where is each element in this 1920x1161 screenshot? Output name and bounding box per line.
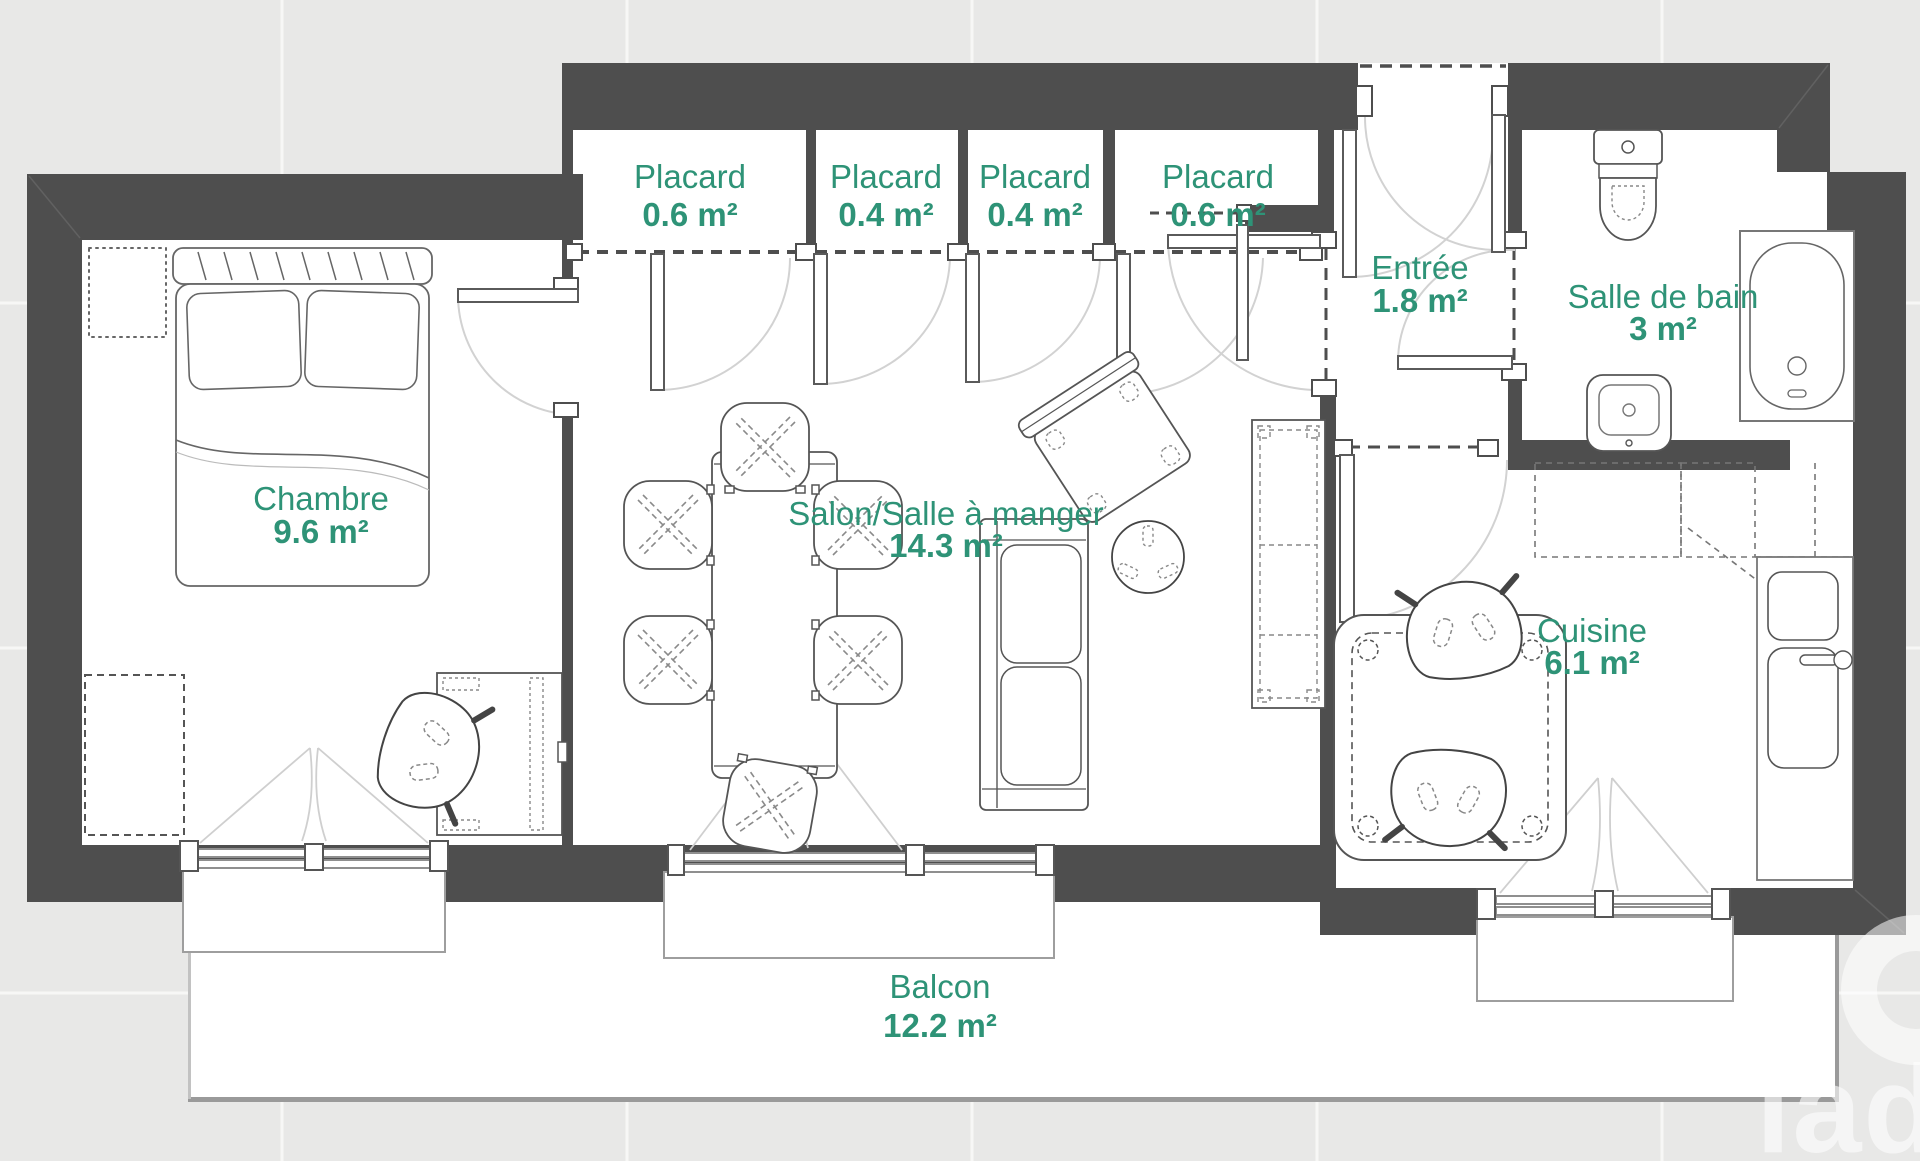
wardrobe — [85, 675, 184, 835]
room-label-chambre-name: Chambre — [253, 480, 389, 517]
room-label-placard3-name: Placard — [979, 158, 1091, 195]
watermark-text: iad — [1756, 1041, 1920, 1161]
room-label-sdb-area: 3 m² — [1629, 310, 1697, 347]
room-label-placard2-area: 0.4 m² — [838, 196, 933, 233]
dining-chair — [624, 481, 714, 569]
floorplan-drawing: Chambre 9.6 m² Placard 0.6 m² Placard 0.… — [0, 0, 1920, 1161]
dining-chair — [721, 403, 809, 493]
room-label-chambre-area: 9.6 m² — [273, 513, 368, 550]
room-label-entree-area: 1.8 m² — [1372, 282, 1467, 319]
nightstand — [89, 248, 166, 337]
dining-chair — [812, 616, 902, 704]
room-label-balcon-name: Balcon — [890, 968, 991, 1005]
room-label-entree-name: Entrée — [1371, 249, 1468, 286]
bathtub — [1740, 231, 1854, 421]
sideboard — [1252, 420, 1325, 708]
floorplan-page: Chambre 9.6 m² Placard 0.6 m² Placard 0.… — [0, 0, 1920, 1161]
room-label-placard2-name: Placard — [830, 158, 942, 195]
room-label-placard4-area: 0.6 m² — [1170, 196, 1265, 233]
watermark-ring-icon — [1859, 933, 1920, 1047]
dining-chair — [624, 616, 714, 704]
room-label-placard4-name: Placard — [1162, 158, 1274, 195]
room-label-placard3-area: 0.4 m² — [987, 196, 1082, 233]
room-label-cuisine-area: 6.1 m² — [1544, 644, 1639, 681]
toilet — [1594, 130, 1662, 240]
room-label-salon-area: 14.3 m² — [889, 527, 1003, 564]
kitchen-sink — [1757, 557, 1853, 880]
room-label-placard1-area: 0.6 m² — [642, 196, 737, 233]
side-table — [1112, 521, 1184, 593]
room-label-placard1-name: Placard — [634, 158, 746, 195]
washbasin — [1587, 375, 1671, 451]
room-label-balcon-area: 12.2 m² — [883, 1007, 997, 1044]
